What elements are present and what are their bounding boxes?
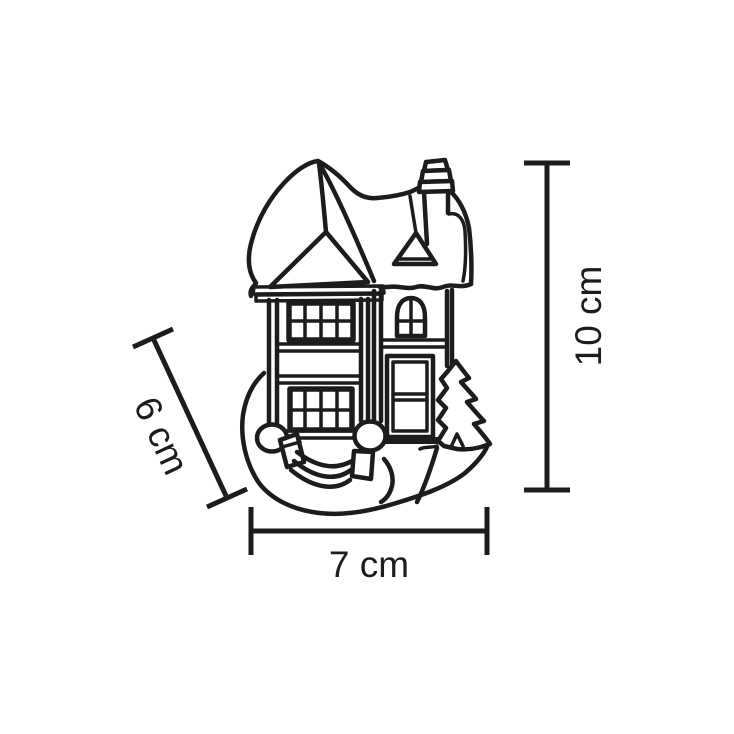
mound-arm-curl [381, 459, 393, 502]
lower-bay-window-mullions [290, 389, 352, 430]
upper-bay-window [289, 303, 353, 340]
depth-dimension-bottom-cap [207, 489, 247, 507]
width-dimension-label: 7 cm [329, 544, 409, 585]
door-middle-bar [393, 394, 427, 400]
fascia-board-lower [256, 294, 382, 301]
height-dimension: 10 cm [524, 163, 609, 490]
lower-bay-window [290, 389, 352, 430]
vent-ridge-connector [410, 196, 416, 233]
arched-window-mullions [399, 300, 423, 336]
bay-right-post [361, 299, 368, 421]
fence-right-ball-post [355, 422, 386, 451]
upper-bay-window-mullions [289, 303, 353, 340]
roof-right-inner-rim [449, 214, 466, 281]
house-figurine-drawing [242, 160, 490, 514]
fence-left-post [280, 434, 304, 467]
height-dimension-label: 10 cm [568, 266, 609, 367]
arched-window [397, 298, 425, 336]
roof-vent [394, 196, 436, 264]
right-floor-band [381, 340, 447, 347]
fence-right-post [352, 451, 373, 479]
bay-floor-band-upper [277, 344, 361, 351]
windows [289, 298, 425, 430]
diagram-canvas: 10 cm 7 cm 6 cm [0, 0, 734, 734]
roof-snow-bottom-edge [380, 284, 471, 288]
gable-inner-triangle [270, 232, 368, 287]
product-dimension-diagram: 10 cm 7 cm 6 cm [0, 0, 734, 734]
wall-divider [374, 291, 381, 421]
width-dimension: 7 cm [251, 507, 487, 585]
chimney-flue [424, 192, 448, 244]
chimney [419, 160, 453, 244]
pine-tree-outline [438, 361, 490, 449]
mound-top-line [420, 446, 437, 449]
door-inner-frame [393, 362, 427, 431]
bay-floor-band-lower [277, 376, 361, 383]
depth-dimension-top-cap [133, 329, 173, 347]
bay-left-post [269, 300, 277, 428]
pine-tree [438, 361, 490, 449]
roof [249, 160, 471, 301]
depth-dimension: 6 cm [126, 329, 247, 507]
roof-right-edge [450, 191, 471, 284]
right-wall-edge [447, 290, 452, 366]
